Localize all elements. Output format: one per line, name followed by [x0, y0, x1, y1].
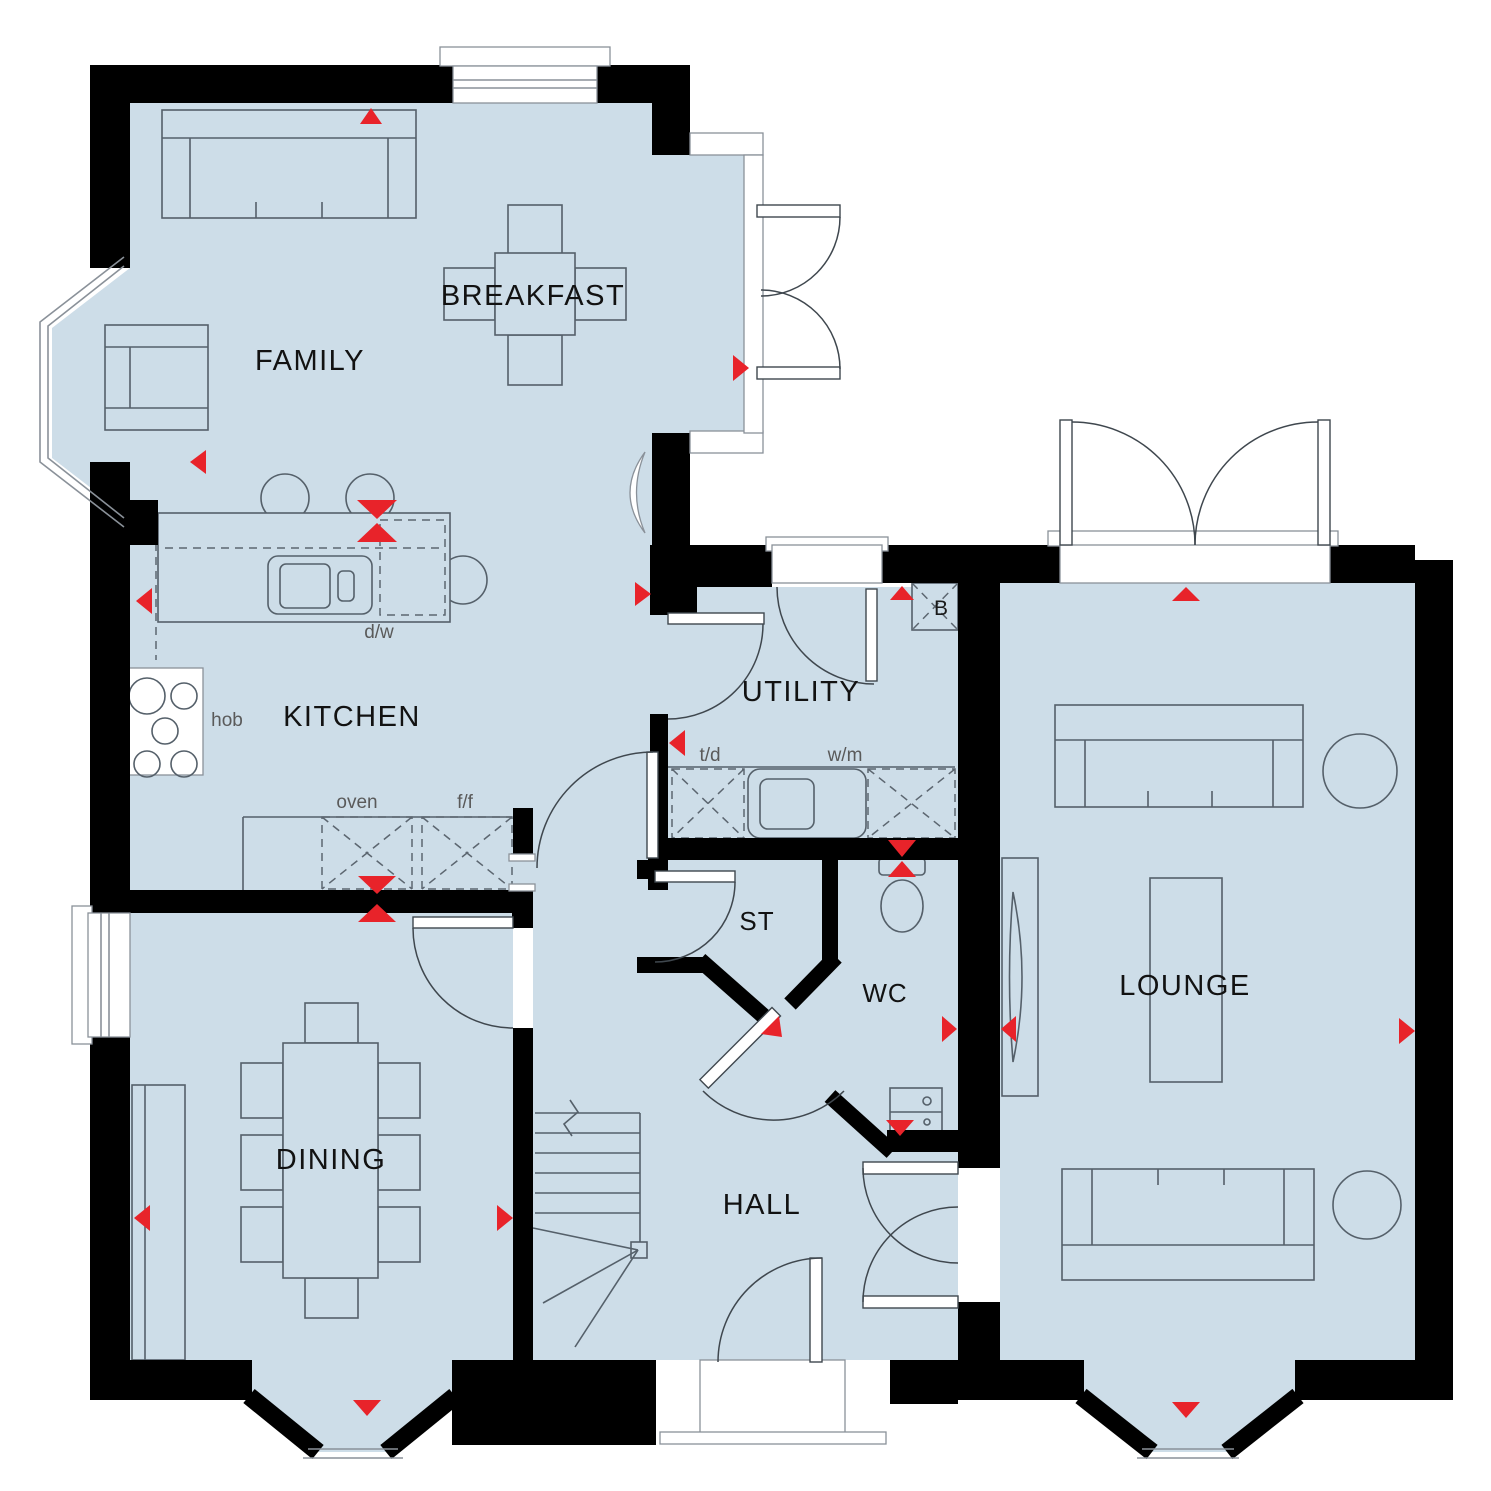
wc-label: WC	[862, 978, 907, 1008]
oven-label: oven	[336, 792, 377, 813]
floorplan-page: FAMILY BREAKFAST KITCHEN UTILITY LOUNGE …	[0, 0, 1491, 1491]
lounge-label: LOUNGE	[1119, 970, 1250, 1002]
store-label: ST	[739, 906, 774, 936]
dining-left-window	[72, 906, 130, 1044]
boiler-label: B	[934, 597, 948, 620]
kitchen-label: KITCHEN	[283, 701, 421, 733]
hob-label: hob	[211, 710, 243, 731]
utility-label: UTILITY	[742, 676, 860, 708]
washing-machine-label: w/m	[827, 745, 863, 766]
family-label: FAMILY	[255, 345, 365, 377]
dishwasher-label: d/w	[364, 622, 394, 643]
hall-label: HALL	[723, 1189, 802, 1221]
breakfast-label: BREAKFAST	[441, 280, 625, 312]
fridge-freezer-label: f/f	[457, 792, 474, 813]
tumble-dryer-label: t/d	[699, 745, 720, 766]
lounge-floor	[1000, 583, 1415, 1452]
room-floors	[52, 103, 1415, 1452]
dining-label: DINING	[276, 1144, 387, 1176]
hob-unit	[122, 668, 203, 777]
lounge-french-doors	[1048, 420, 1338, 583]
floorplan-svg: FAMILY BREAKFAST KITCHEN UTILITY LOUNGE …	[0, 0, 1491, 1491]
family-top-window	[440, 47, 610, 103]
